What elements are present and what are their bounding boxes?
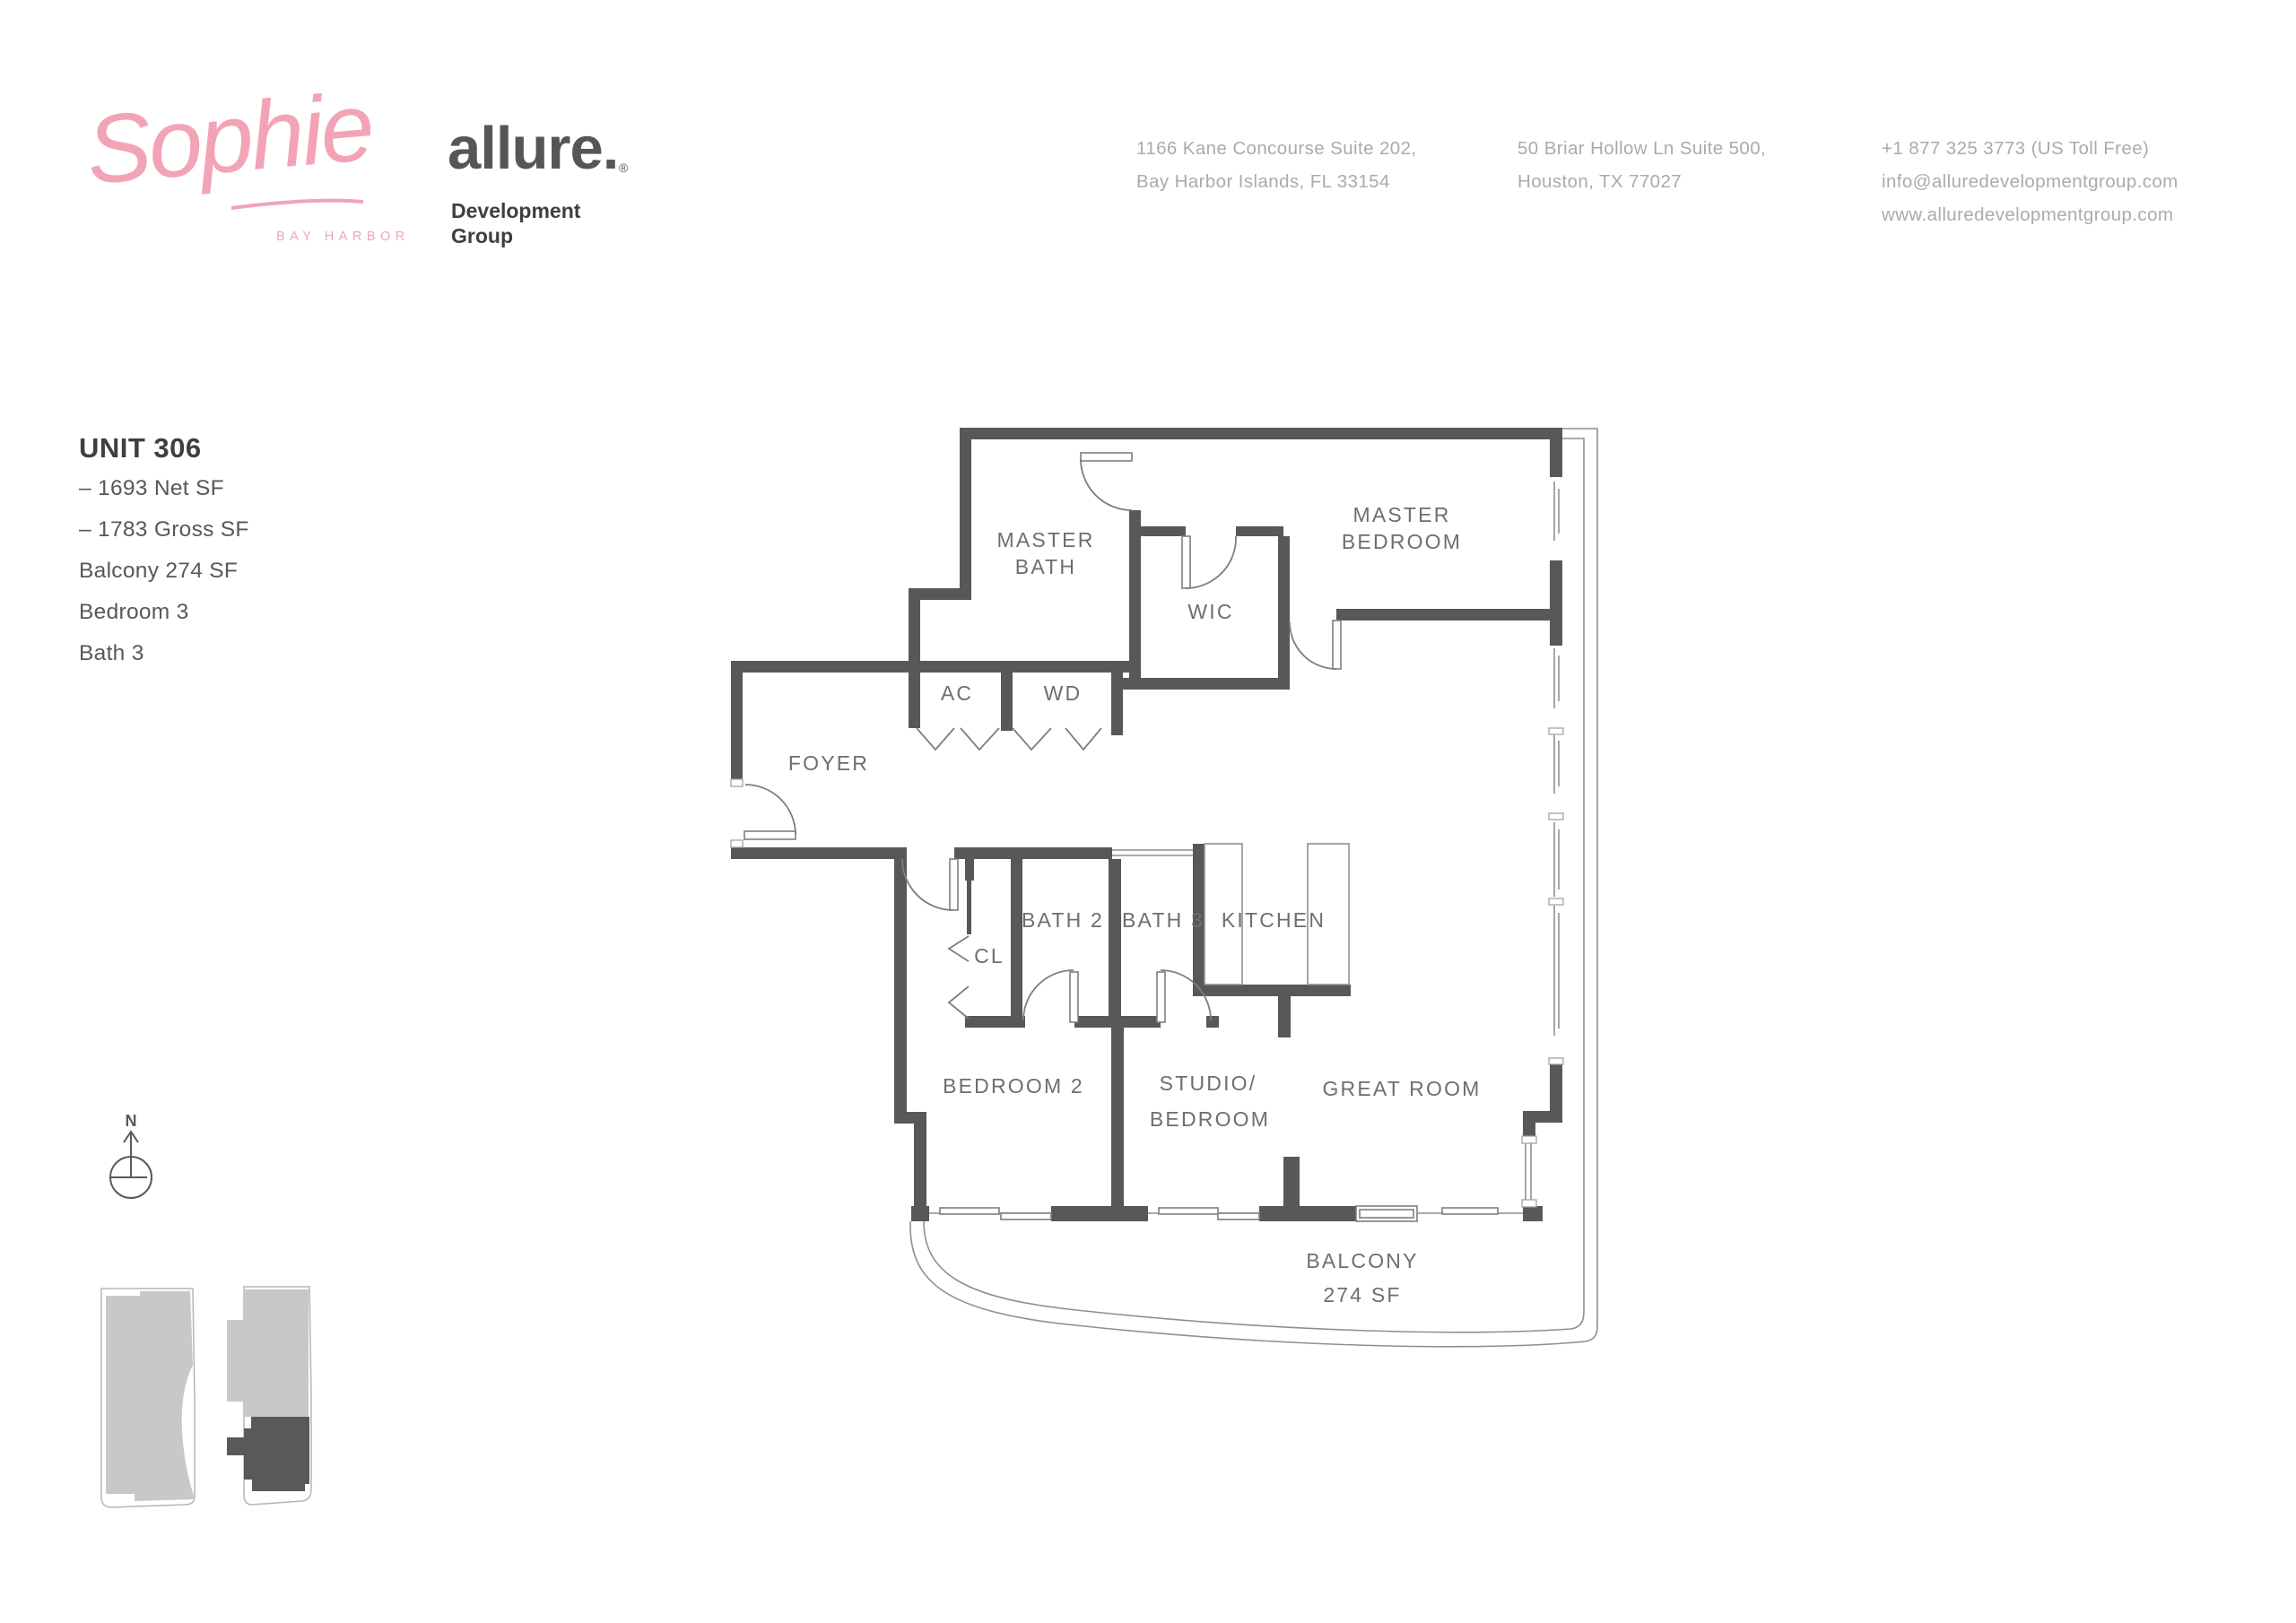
unit-info: UNIT 306 – 1693 Net SF – 1783 Gross SF B… [79, 432, 249, 665]
room-label-kitchen: KITCHEN [1222, 908, 1326, 932]
email-line: info@alluredevelopmentgroup.com [1882, 171, 2179, 192]
room-label-wd: WD [1044, 681, 1083, 705]
compass-north-label: N [126, 1112, 137, 1130]
sophie-underline-swash [231, 201, 363, 208]
room-label-studio-2: BEDROOM [1150, 1107, 1270, 1131]
address1-line1: 1166 Kane Concourse Suite 202, [1136, 138, 1417, 159]
sophie-logo: Sophie BAY HARBOR [82, 72, 409, 244]
address2-line2: Houston, TX 77027 [1518, 171, 1682, 192]
floorplan-sheet: Sophie BAY HARBOR allure. ® Development … [0, 0, 2296, 1623]
allure-wordmark: allure. [448, 115, 618, 182]
compass-icon: N [109, 1112, 152, 1198]
room-label-balcony-1: BALCONY [1306, 1249, 1418, 1272]
page-graphics: Sophie BAY HARBOR allure. ® Development … [0, 0, 2296, 1623]
room-label-ac: AC [941, 681, 973, 705]
address1-line2: Bay Harbor Islands, FL 33154 [1136, 171, 1390, 192]
room-label-great-room: GREAT ROOM [1322, 1077, 1481, 1100]
unit-spec-balcony: Balcony 274 SF [79, 559, 238, 583]
keyplan-left-tower-mass [106, 1291, 195, 1501]
sophie-subtitle: BAY HARBOR [276, 230, 410, 244]
unit-spec-gross-sf: – 1783 Gross SF [79, 517, 249, 542]
room-label-balcony-2: 274 SF [1323, 1283, 1401, 1306]
unit-title: UNIT 306 [79, 432, 202, 464]
room-label-bedroom2: BEDROOM 2 [943, 1074, 1084, 1098]
keyplan [101, 1287, 311, 1507]
room-label-studio-1: STUDIO/ [1160, 1072, 1257, 1095]
room-label-bath2: BATH 2 [1022, 908, 1104, 932]
allure-sub1: Development [451, 199, 581, 222]
website-line: www.alluredevelopmentgroup.com [1881, 204, 2173, 225]
room-label-master-bedroom-1: MASTER [1352, 503, 1450, 526]
keyplan-right-tower-mass [227, 1289, 309, 1417]
room-label-master-bath-1: MASTER [996, 528, 1094, 551]
allure-registered-mark: ® [619, 161, 629, 175]
phone-line: +1 877 325 3773 (US Toll Free) [1882, 138, 2149, 159]
unit-spec-baths: Bath 3 [79, 641, 144, 665]
sophie-script-logo: Sophie [82, 72, 376, 204]
room-label-foyer: FOYER [788, 751, 869, 775]
room-label-cl: CL [974, 944, 1004, 968]
room-label-master-bath-2: BATH [1015, 555, 1076, 578]
allure-logo: allure. ® Development Group [448, 115, 629, 247]
room-label-wic: WIC [1187, 600, 1233, 623]
unit-spec-net-sf: – 1693 Net SF [79, 476, 224, 500]
unit-spec-bedrooms: Bedroom 3 [79, 600, 189, 624]
contact-info: 1166 Kane Concourse Suite 202, Bay Harbo… [1136, 138, 2179, 225]
room-label-bath3: BATH 3 [1122, 908, 1205, 932]
allure-sub2: Group [451, 224, 513, 247]
room-label-master-bedroom-2: BEDROOM [1342, 530, 1462, 553]
floorplan: MASTER BATH WIC MASTER BEDROOM AC WD FOY… [731, 428, 1597, 1347]
address2-line1: 50 Briar Hollow Ln Suite 500, [1518, 138, 1766, 159]
keyplan-unit-highlight [227, 1417, 309, 1491]
